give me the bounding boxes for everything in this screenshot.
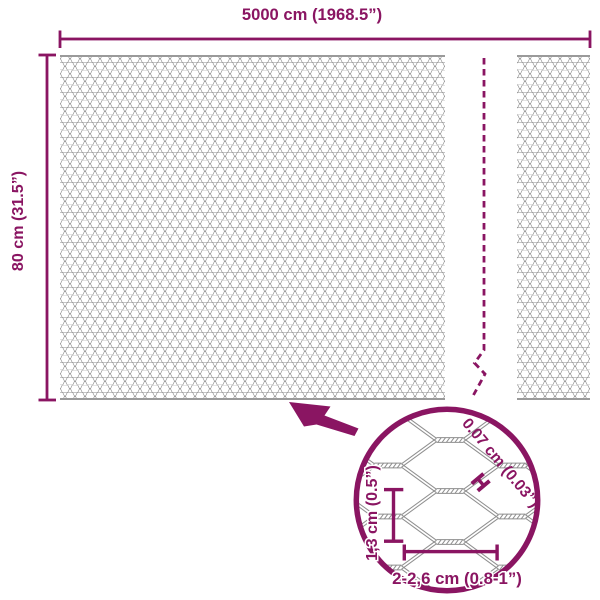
svg-text:1,3 cm (0.5”): 1,3 cm (0.5”) [363, 465, 381, 561]
svg-text:5000 cm (1968.5”): 5000 cm (1968.5”) [242, 5, 382, 24]
svg-text:80 cm (31.5”): 80 cm (31.5”) [9, 171, 27, 271]
svg-text:2-2,6 cm (0.8-1”): 2-2,6 cm (0.8-1”) [392, 569, 522, 588]
